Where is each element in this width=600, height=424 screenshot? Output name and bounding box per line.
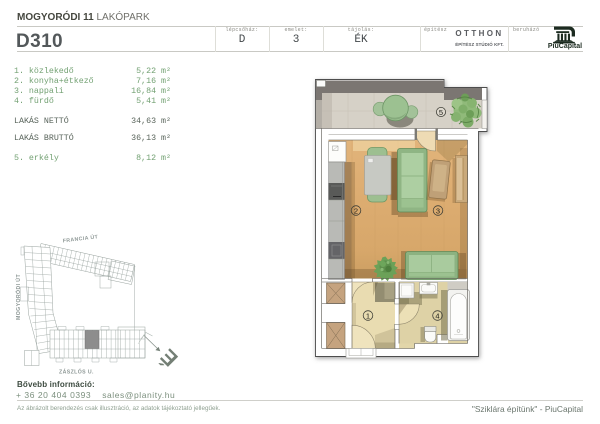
svg-text:ZÁSZLÓS U.: ZÁSZLÓS U. <box>59 368 94 376</box>
svg-text:MOGYORÓDI ÚT: MOGYORÓDI ÚT <box>14 274 22 320</box>
svg-text:1: 1 <box>366 311 370 320</box>
svg-text:2: 2 <box>354 206 358 215</box>
svg-text:4: 4 <box>435 311 439 320</box>
svg-text:3: 3 <box>436 206 440 215</box>
svg-text:É: É <box>156 344 182 370</box>
svg-text:5: 5 <box>439 108 443 117</box>
svg-text:FRANCIA ÚT: FRANCIA ÚT <box>62 233 99 244</box>
